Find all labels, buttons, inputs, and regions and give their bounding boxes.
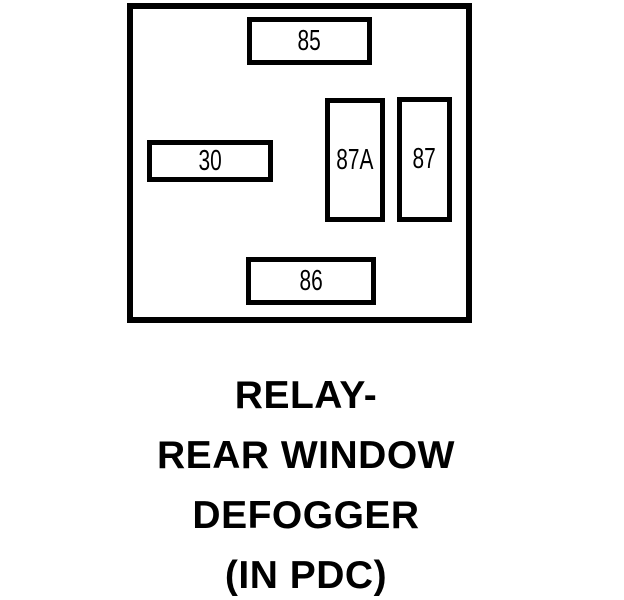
pin-30-label: 30 [198,147,221,176]
pin-85: 85 [247,17,372,65]
caption-line-defogger: DEFOGGER [0,486,612,546]
diagram-caption: RELAY- REAR WINDOW DEFOGGER (IN PDC) [0,366,612,600]
pin-87a-label: 87A [336,146,373,175]
pin-86: 86 [246,257,376,305]
caption-line-rear-window: REAR WINDOW [0,426,612,486]
caption-line-relay: RELAY- [0,366,612,426]
relay-pinout-diagram: 85 30 87A 87 86 RELAY- REAR WINDOW DEFOG… [0,0,624,600]
pin-86-label: 86 [299,267,322,296]
pin-87: 87 [397,97,452,222]
pin-30: 30 [147,140,273,182]
pin-87-label: 87 [413,145,436,174]
caption-line-in-pdc: (IN PDC) [0,546,612,600]
pin-87a: 87A [325,98,385,222]
pin-85-label: 85 [298,27,321,56]
